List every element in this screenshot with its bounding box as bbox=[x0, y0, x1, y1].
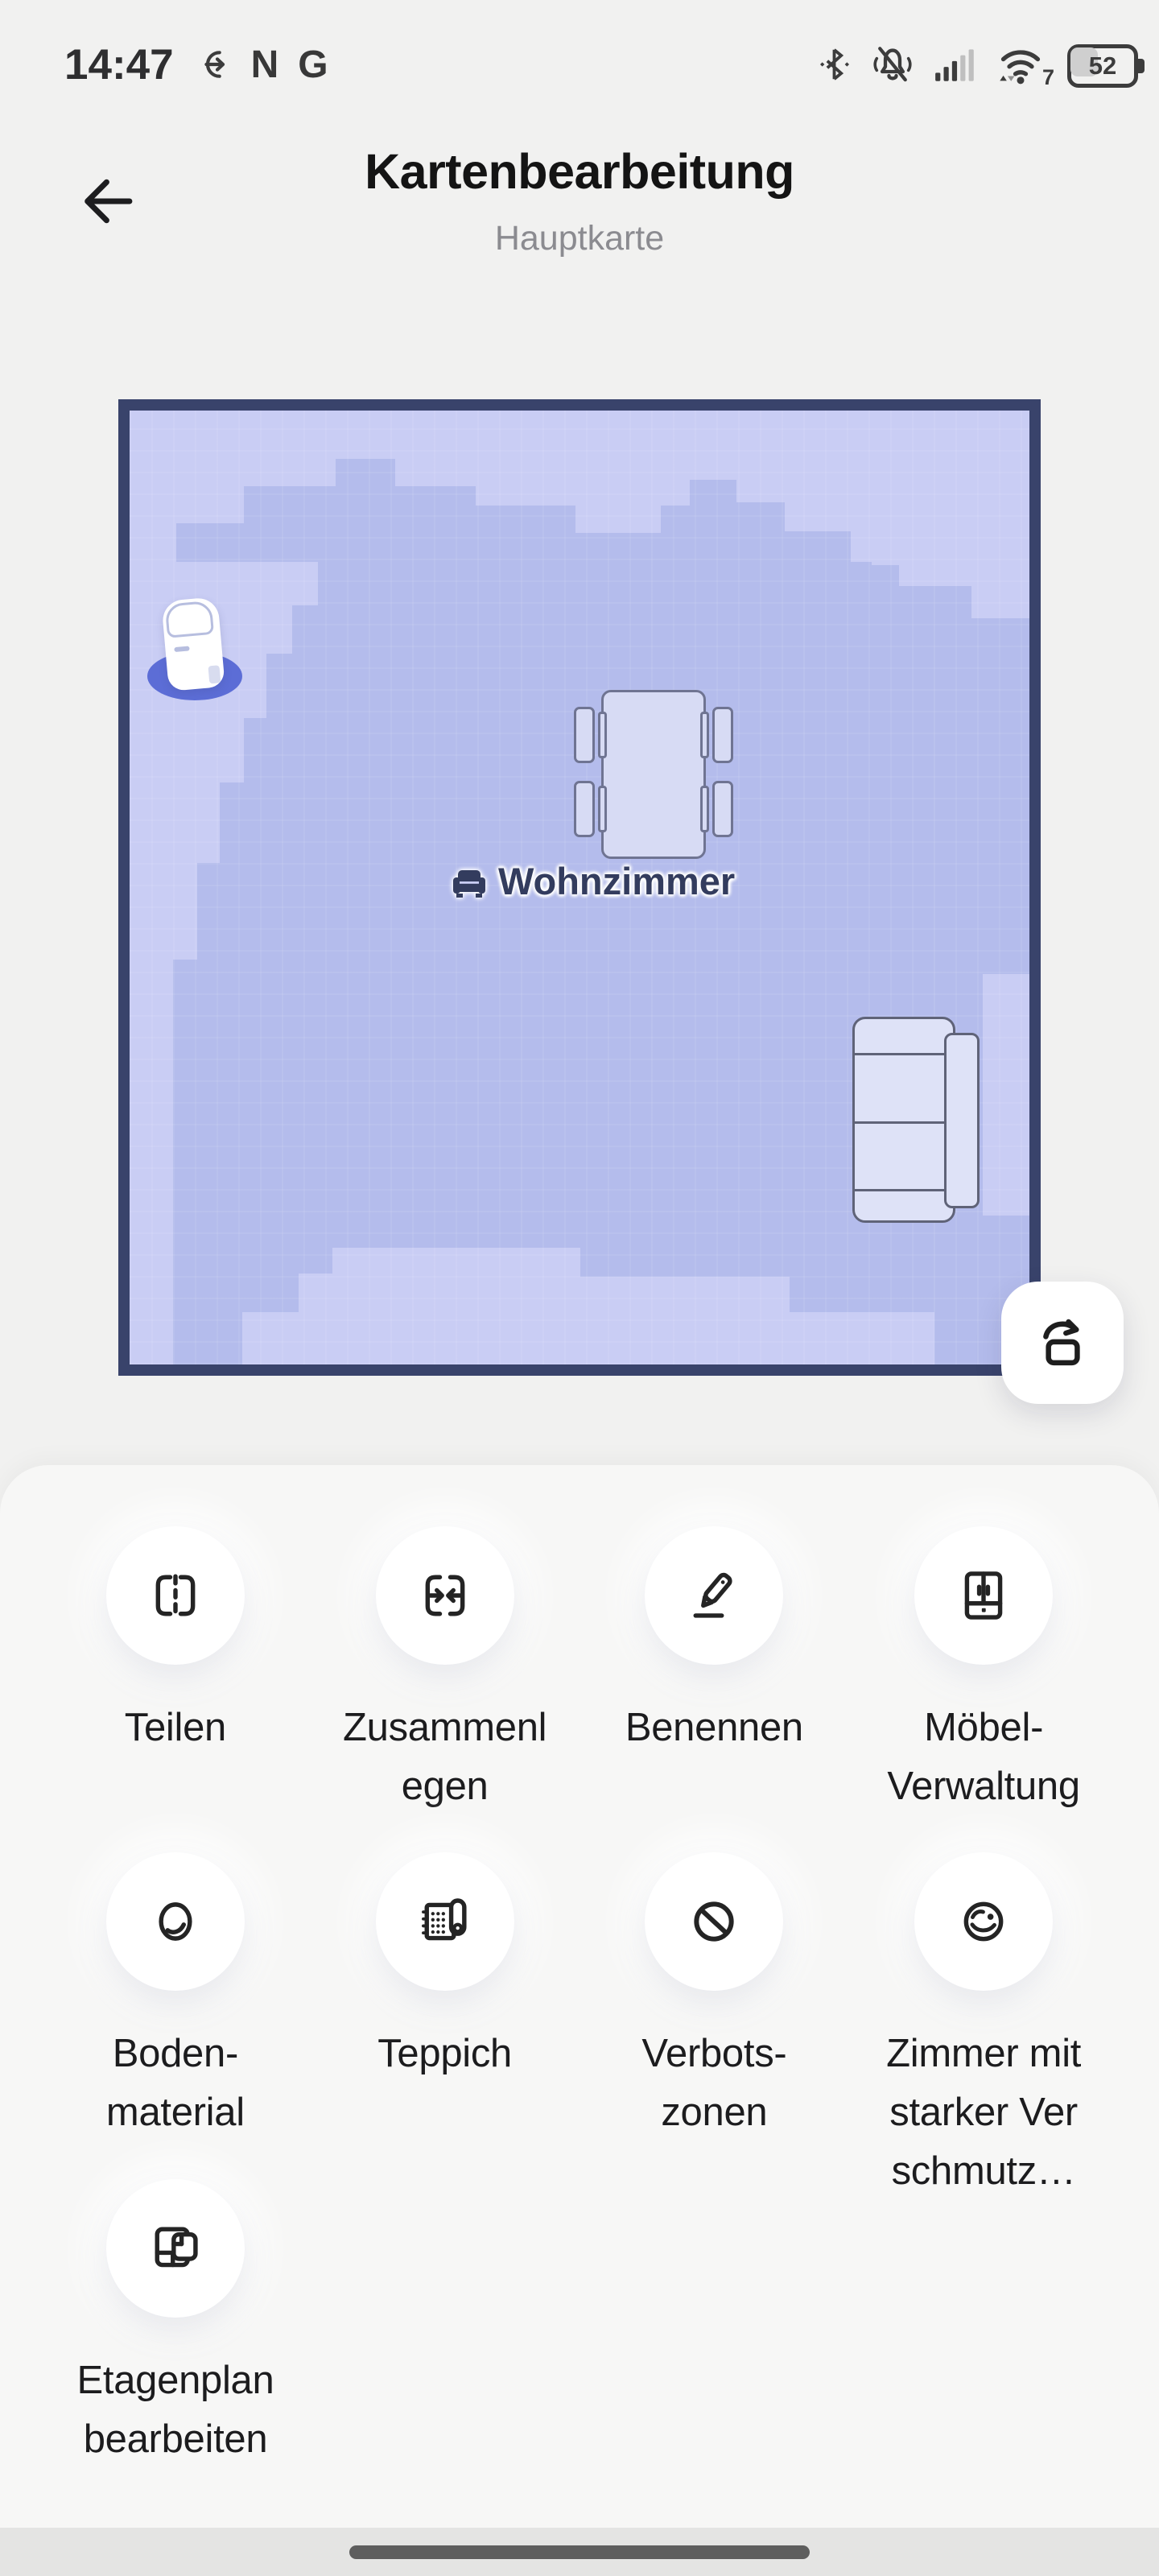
action-circle bbox=[645, 1526, 783, 1665]
action-bodenmaterial[interactable]: Boden- material bbox=[55, 1852, 296, 2201]
battery-tip bbox=[1138, 59, 1145, 73]
sofa-backrest bbox=[944, 1033, 980, 1208]
chair-furniture bbox=[712, 707, 733, 763]
sofa-cushion-line bbox=[855, 1121, 953, 1124]
page-subtitle: Hauptkarte bbox=[0, 219, 1159, 258]
bottom-nav-strip bbox=[0, 2528, 1159, 2576]
action-label: Benennen bbox=[625, 1699, 803, 1757]
action-label: Verbots- zonen bbox=[641, 2025, 786, 2142]
chair-furniture bbox=[574, 707, 595, 763]
action-label: Zimmer mit starker Ver schmutz… bbox=[886, 2025, 1081, 2201]
action-teppich[interactable]: Teppich bbox=[324, 1852, 566, 2201]
action-benennen[interactable]: Benennen bbox=[594, 1526, 835, 1816]
home-indicator[interactable] bbox=[349, 2545, 810, 2559]
action-label: Teppich bbox=[377, 2025, 512, 2083]
action-label: Möbel- Verwaltung bbox=[887, 1699, 1079, 1816]
action-label: Zusammenl egen bbox=[343, 1699, 547, 1816]
chair-seat bbox=[700, 786, 709, 832]
chair-seat bbox=[598, 712, 607, 758]
action-circle bbox=[645, 1852, 783, 1991]
bluetooth-icon bbox=[816, 44, 853, 85]
rename-icon bbox=[683, 1564, 745, 1627]
chair-seat bbox=[700, 712, 709, 758]
table-furniture bbox=[601, 690, 706, 859]
split-map-icon bbox=[144, 1564, 207, 1627]
dock-station bbox=[147, 599, 260, 704]
map-actions-sheet: Teilen Zusammenl egen bbox=[0, 1465, 1159, 2528]
app-badge-icon: G bbox=[298, 43, 328, 87]
merge-map-icon bbox=[414, 1564, 476, 1627]
sofa-armrest-line bbox=[855, 1189, 953, 1191]
action-label: Boden- material bbox=[106, 2025, 245, 2142]
action-zimmer-starke-verschmutzung[interactable]: Zimmer mit starker Ver schmutz… bbox=[863, 1852, 1104, 2201]
no-go-zone-icon bbox=[683, 1890, 745, 1953]
status-bar: 14:47 N G bbox=[0, 0, 1159, 121]
carpet-icon bbox=[414, 1890, 476, 1953]
action-label: Teilen bbox=[125, 1699, 226, 1757]
heavy-dirt-room-icon bbox=[952, 1890, 1015, 1953]
sync-icon bbox=[193, 45, 232, 84]
dock-lid bbox=[165, 601, 214, 638]
sofa-body bbox=[852, 1017, 955, 1223]
actions-row-1: Teilen Zusammenl egen bbox=[0, 1526, 1159, 1816]
chair-furniture bbox=[712, 781, 733, 837]
mute-vibrate-icon bbox=[871, 43, 914, 86]
status-bar-right: 7 52 bbox=[816, 42, 1145, 87]
action-circle bbox=[914, 1852, 1053, 1991]
room-label[interactable]: Wohnzimmer bbox=[450, 859, 735, 903]
battery-percent: 52 bbox=[1067, 44, 1138, 88]
battery-icon: 52 bbox=[1067, 44, 1145, 85]
furniture-management-icon bbox=[952, 1564, 1015, 1627]
action-circle bbox=[376, 1526, 514, 1665]
couch-icon bbox=[450, 862, 489, 901]
action-circle bbox=[106, 1526, 245, 1665]
action-moebel-verwaltung[interactable]: Möbel- Verwaltung bbox=[863, 1526, 1104, 1816]
chair-seat bbox=[598, 786, 607, 832]
room-map[interactable]: Wohnzimmer bbox=[118, 399, 1041, 1376]
action-circle bbox=[106, 2179, 245, 2318]
action-circle bbox=[914, 1526, 1053, 1665]
sofa-furniture bbox=[852, 1017, 980, 1223]
action-circle bbox=[106, 1852, 245, 1991]
action-circle bbox=[376, 1852, 514, 1991]
action-label: Etagenplan bearbeiten bbox=[77, 2351, 274, 2469]
dock-slot bbox=[174, 646, 189, 652]
rotate-map-icon bbox=[1031, 1311, 1094, 1374]
wifi-generation-label: 7 bbox=[1042, 65, 1054, 90]
chair-furniture bbox=[574, 781, 595, 837]
clock: 14:47 bbox=[64, 40, 174, 89]
page-title: Kartenbearbeitung bbox=[0, 143, 1159, 200]
actions-row-3: Etagenplan bearbeiten bbox=[0, 2179, 1159, 2469]
dock-foot bbox=[208, 665, 221, 683]
action-teilen[interactable]: Teilen bbox=[55, 1526, 296, 1816]
signal-icon bbox=[932, 44, 979, 85]
action-verbotszonen[interactable]: Verbots- zonen bbox=[594, 1852, 835, 2201]
actions-row-2: Boden- material bbox=[0, 1852, 1159, 2201]
room-name: Wohnzimmer bbox=[498, 859, 735, 903]
action-etagenplan-bearbeiten[interactable]: Etagenplan bearbeiten bbox=[55, 2179, 296, 2469]
sofa-armrest-line bbox=[855, 1053, 953, 1055]
wifi-icon: 7 bbox=[996, 42, 1050, 87]
nfc-icon: N bbox=[251, 43, 279, 87]
status-bar-left: 14:47 N G bbox=[64, 40, 328, 89]
screen: 14:47 N G bbox=[0, 0, 1159, 2576]
rotate-map-button[interactable] bbox=[1001, 1282, 1124, 1404]
dock-body bbox=[161, 597, 225, 691]
floor-material-icon bbox=[144, 1890, 207, 1953]
floor-plan-edit-icon bbox=[144, 2217, 207, 2280]
action-zusammenlegen[interactable]: Zusammenl egen bbox=[324, 1526, 566, 1816]
